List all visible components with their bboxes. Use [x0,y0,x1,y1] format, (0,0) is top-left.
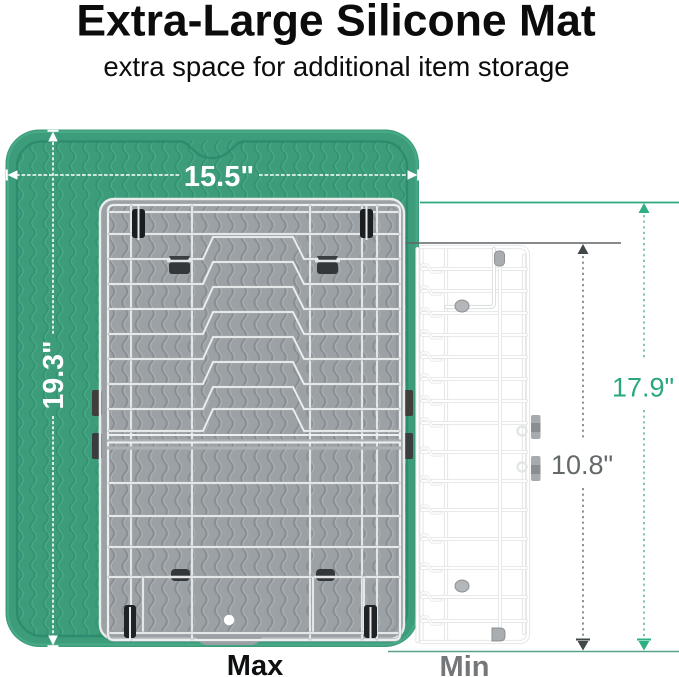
svg-text:17.9": 17.9" [612,373,674,403]
svg-text:19.3": 19.3" [38,341,70,410]
svg-text:extra space for additional ite: extra space for additional item storage [103,51,569,82]
svg-text:Max: Max [227,650,283,677]
svg-text:15.5": 15.5" [184,161,254,193]
svg-text:10.8": 10.8" [551,450,613,480]
svg-text:Min: Min [440,651,490,677]
svg-text:Extra-Large Silicone Mat: Extra-Large Silicone Mat [76,0,595,46]
